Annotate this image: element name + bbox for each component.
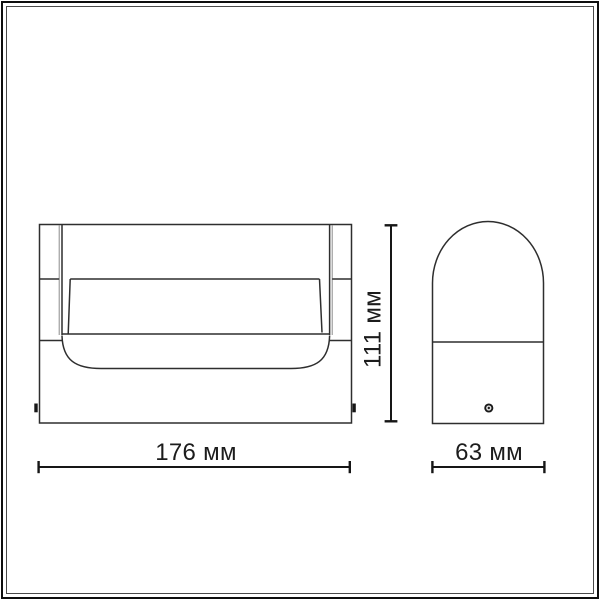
drawing-page: 111 мм 176 мм 63 мм: [0, 0, 600, 600]
dimension-drawing: 111 мм 176 мм 63 мм: [0, 0, 600, 600]
dimension-height: 111 мм: [360, 225, 398, 421]
dim-depth-label: 63 мм: [455, 439, 523, 466]
dimension-depth: 63 мм: [432, 439, 544, 473]
side-outline: [433, 222, 544, 424]
dimension-width: 176 мм: [39, 439, 350, 473]
dim-width-label: 176 мм: [155, 439, 237, 466]
side-screw-center-dot: [488, 407, 490, 409]
dim-height-label: 111 мм: [360, 290, 387, 368]
front-view: [34, 225, 356, 424]
front-outline: [40, 225, 352, 424]
front-diffuser-bowl: [62, 336, 330, 369]
side-view: [433, 222, 544, 424]
front-right-mount-tab: [352, 404, 355, 413]
front-light-panel: [62, 279, 330, 334]
front-left-mount-tab: [34, 404, 37, 413]
